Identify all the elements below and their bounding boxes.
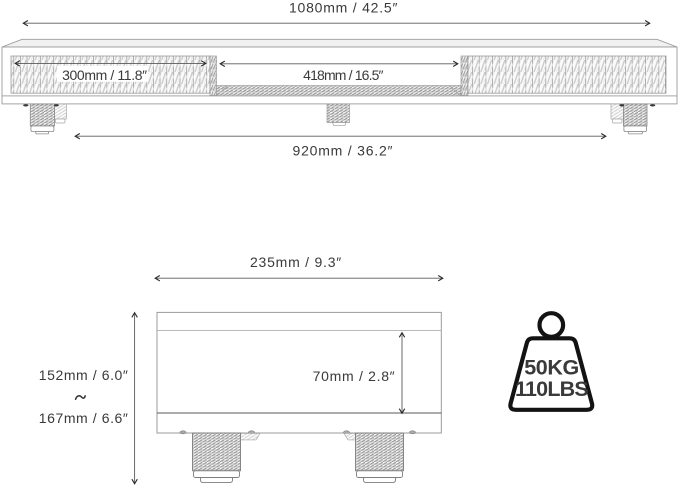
svg-text:50KG: 50KG: [524, 356, 579, 380]
svg-text:920mm / 36.2″: 920mm / 36.2″: [293, 143, 394, 159]
svg-text:152mm / 6.0″: 152mm / 6.0″: [39, 367, 129, 383]
svg-text:418mm / 16.5″: 418mm / 16.5″: [303, 67, 383, 83]
svg-text:300mm / 11.8″: 300mm / 11.8″: [62, 67, 147, 83]
svg-text:167mm / 6.6″: 167mm / 6.6″: [39, 410, 129, 426]
svg-text:70mm / 2.8″: 70mm / 2.8″: [313, 368, 396, 384]
svg-text:110LBS: 110LBS: [515, 377, 588, 401]
svg-text:235mm / 9.3″: 235mm / 9.3″: [250, 254, 342, 270]
svg-text:1080mm / 42.5″: 1080mm / 42.5″: [289, 0, 398, 15]
